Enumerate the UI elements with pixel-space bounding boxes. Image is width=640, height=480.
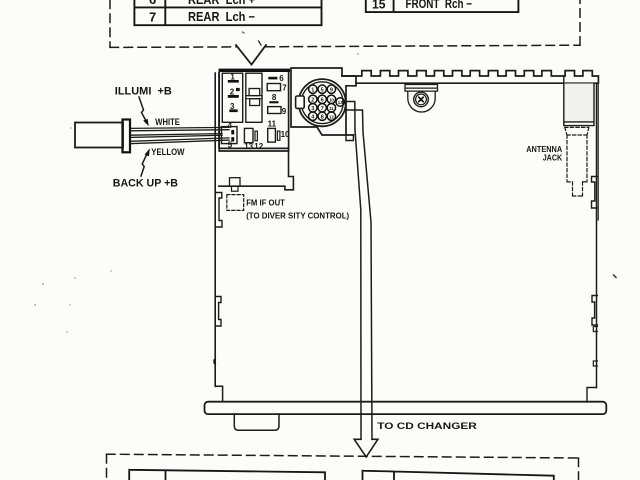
svg-text:15: 15 bbox=[372, 0, 386, 11]
svg-text:JACK: JACK bbox=[543, 152, 563, 162]
svg-text:7: 7 bbox=[321, 106, 324, 112]
svg-text:7: 7 bbox=[282, 84, 287, 93]
svg-text:BACK UP +B: BACK UP +B bbox=[113, 178, 178, 190]
svg-text:11: 11 bbox=[268, 119, 277, 128]
svg-text:WHITE: WHITE bbox=[155, 117, 180, 127]
svg-text:(TO DIVER SITY CONTROL): (TO DIVER SITY CONTROL) bbox=[246, 211, 349, 221]
svg-text:FM IF OUT: FM IF OUT bbox=[246, 198, 285, 208]
svg-text:4: 4 bbox=[228, 121, 233, 130]
svg-text:6: 6 bbox=[279, 74, 284, 83]
svg-text:5: 5 bbox=[228, 141, 233, 150]
svg-text:2: 2 bbox=[311, 97, 314, 103]
svg-text:6: 6 bbox=[321, 97, 324, 103]
svg-text:9: 9 bbox=[330, 87, 333, 93]
svg-text:8: 8 bbox=[272, 93, 277, 102]
svg-text:6: 6 bbox=[149, 0, 156, 7]
svg-text:REAR Lch +: REAR Lch + bbox=[188, 0, 255, 7]
svg-text:12: 12 bbox=[254, 142, 263, 151]
svg-text:5: 5 bbox=[321, 87, 324, 93]
svg-text:11: 11 bbox=[329, 106, 334, 111]
svg-text:ILLUMI +B: ILLUMI +B bbox=[115, 86, 172, 98]
svg-text:YELLOW: YELLOW bbox=[151, 147, 185, 157]
svg-text:10: 10 bbox=[281, 130, 290, 139]
svg-text:3: 3 bbox=[311, 106, 314, 112]
svg-text:TO CD CHANGER: TO CD CHANGER bbox=[377, 421, 477, 432]
svg-text:8: 8 bbox=[321, 114, 324, 120]
svg-text:12: 12 bbox=[329, 114, 334, 119]
svg-text:9: 9 bbox=[282, 107, 287, 116]
svg-text:13: 13 bbox=[338, 100, 343, 105]
svg-text:1: 1 bbox=[311, 87, 314, 93]
svg-text:7: 7 bbox=[149, 9, 156, 24]
svg-text:REAR Lch −: REAR Lch − bbox=[188, 10, 255, 24]
svg-text:10: 10 bbox=[329, 97, 334, 102]
svg-text:13: 13 bbox=[244, 142, 253, 151]
svg-text:FRONT Rch −: FRONT Rch − bbox=[406, 0, 473, 11]
